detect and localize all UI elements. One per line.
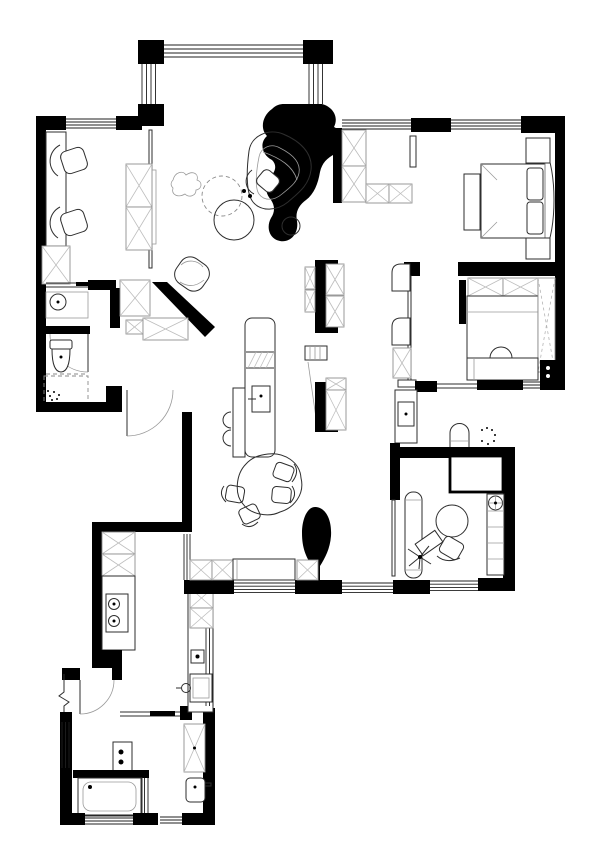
living-south-wall-3 <box>393 580 430 594</box>
study-bookcase-lower <box>126 207 152 250</box>
pouf <box>214 200 254 240</box>
master-wardrobe-2 <box>342 166 366 202</box>
master-corner-wall <box>521 116 565 133</box>
organic-blob-wall <box>262 104 343 241</box>
bath-corner-wall <box>106 386 122 412</box>
partition-2-cell <box>326 390 346 430</box>
dining-chair-4-back <box>221 486 226 502</box>
office-storage <box>450 456 503 492</box>
master-door-leaf <box>410 136 416 167</box>
master-wardrobe-4 <box>389 184 412 203</box>
ensuite-spray-dots-d1 <box>486 427 488 429</box>
master-pillow-1 <box>527 168 543 200</box>
east-outer-wall <box>555 133 565 390</box>
master-headboard <box>545 149 554 251</box>
desk-item-dot-1 <box>248 194 252 198</box>
column-top-right <box>303 40 333 64</box>
dining-chair-2 <box>271 486 291 504</box>
shower-2-drain <box>193 747 196 750</box>
living-south-wall-1 <box>184 580 234 594</box>
bathtub-drain <box>88 785 92 789</box>
bottom-wall-2 <box>133 813 158 825</box>
ensuite-spray-dots-d2 <box>491 429 493 431</box>
office-glass <box>392 500 395 576</box>
study-corner-wall <box>36 116 66 130</box>
master-pillow-2 <box>527 202 543 234</box>
bedroom2-bottom-window <box>523 382 540 388</box>
corridor-door-arc <box>127 390 173 436</box>
partition-1-wall <box>315 262 326 326</box>
office-star-hub <box>418 555 422 559</box>
bedroom2-bottom-wall-2 <box>540 380 565 390</box>
living-south-wall-2 <box>295 580 342 594</box>
office-speaker-dot <box>494 502 497 505</box>
bath-sink-drain <box>57 301 60 304</box>
bar-stool-2 <box>223 430 231 446</box>
kitchen-cabinet-w2 <box>102 554 135 576</box>
kitchen-top-wall <box>92 522 190 532</box>
study-bookcase-upper <box>126 164 152 207</box>
study-window <box>66 119 116 128</box>
master-wardrobe-3 <box>366 184 389 203</box>
hall-cabinet-round-1 <box>392 264 410 291</box>
bedroom2-unit-dot-2 <box>546 374 550 378</box>
window-column-right <box>309 64 323 104</box>
ensuite-spray-dots-d4 <box>493 440 495 442</box>
partition-shelf <box>305 346 327 360</box>
floor-plan-svg <box>0 0 600 867</box>
shower-area <box>44 376 88 404</box>
shower-spray-dots <box>47 390 60 401</box>
entry-door-arc <box>80 680 114 714</box>
hall-cabinet-round-2 <box>392 318 410 345</box>
tv-bench-3 <box>297 560 318 580</box>
bath-sliding-door-handle <box>76 282 90 286</box>
toilet-nook-wall <box>46 326 90 334</box>
dining-table <box>237 454 302 515</box>
shower-spray-dots-d4 <box>56 398 58 400</box>
bedroom2-headboard-2 <box>503 278 538 296</box>
master-bench <box>464 174 480 230</box>
entry-jamb-left <box>62 668 80 680</box>
tv-bench-counter <box>233 559 295 580</box>
island-side-counter <box>233 388 245 457</box>
ensuite-toilet <box>450 424 469 448</box>
ensuite-slide-handle <box>421 383 437 387</box>
study-wardrobe <box>42 246 70 284</box>
hall-vanity-drain <box>405 413 408 416</box>
office-west-wall <box>390 443 400 500</box>
hall-cabinet-x <box>393 348 411 378</box>
study-bookcase-panel <box>152 170 156 244</box>
hall-bench-small <box>126 320 143 334</box>
washer-knob-2 <box>119 760 124 765</box>
kitchen-counter-west <box>102 576 135 650</box>
bottom-window-2 <box>160 817 182 823</box>
dining-chair-1 <box>272 461 295 483</box>
armchair-seat <box>170 253 213 296</box>
bath-bottom-wall <box>36 402 114 412</box>
wc-slide-handle <box>150 711 175 716</box>
bedroom2-panel <box>459 280 466 324</box>
bath-inner-wall <box>110 288 120 328</box>
desk-item-dot-2 <box>242 189 246 193</box>
corridor-east-window <box>184 534 190 580</box>
entry-jamb-right <box>112 668 122 680</box>
bedroom2-headboard-1 <box>468 278 503 296</box>
kitchen-sw-corner-wall <box>92 650 122 668</box>
shower-spray-dots-d1 <box>53 391 55 393</box>
living-south-window-1 <box>234 583 295 593</box>
ensuite-spray-dots-d0 <box>481 429 483 431</box>
dining-chair-4 <box>225 485 246 504</box>
partition-2-cell-small <box>326 378 346 390</box>
shower-spray-dots-d5 <box>47 390 49 392</box>
bedroom2-bottom-wall-1 <box>477 380 523 390</box>
bedroom2-desk <box>467 358 538 380</box>
island-cooktop-dot <box>260 395 263 398</box>
ensuite-spray-dots-d5 <box>487 443 489 445</box>
stove-burner-1-dot <box>113 603 116 606</box>
hall-closet <box>120 280 150 316</box>
kitchen-cabinet-e2 <box>190 608 213 628</box>
toilet-tank <box>50 340 72 349</box>
partition-1-small-2 <box>305 290 315 312</box>
living-south-window-2 <box>342 583 393 593</box>
study-wall-block <box>116 116 142 130</box>
bedroom2-top-wall <box>458 262 565 276</box>
office-window <box>430 581 478 591</box>
master-wall-block <box>411 118 451 132</box>
window-column-left <box>142 64 156 104</box>
bar-stool-1 <box>223 412 231 428</box>
master-wardrobe-wall <box>333 128 342 203</box>
kitchen-cabinet-w1 <box>102 532 135 554</box>
corridor-east-wall <box>182 412 192 532</box>
shower-spray-dots-d0 <box>49 395 51 397</box>
window-top-main <box>164 45 303 57</box>
left-outer-wall-bath <box>36 292 46 402</box>
column-top-left <box>138 40 164 64</box>
master-window-1 <box>342 120 411 129</box>
master-window-2 <box>451 120 521 129</box>
office-east-wall <box>503 447 515 588</box>
toilet-2 <box>186 778 205 802</box>
bedroom2-wardrobe <box>538 278 555 372</box>
nightstand-1 <box>526 138 550 163</box>
washer-knob-1 <box>119 750 124 755</box>
laundry-wall <box>73 770 149 778</box>
stove-burner-2-dot <box>113 620 116 623</box>
ensuite-spray-dots <box>481 427 496 445</box>
kitchen-socket-dot <box>196 655 200 659</box>
partition-1-small-1 <box>305 267 315 289</box>
hall-bench-long <box>143 318 188 340</box>
rug-circle-dashed <box>202 176 242 216</box>
floor-plan <box>0 0 600 867</box>
shower-spray-dots-d3 <box>51 399 53 401</box>
bedroom2-bed <box>467 296 538 360</box>
master-wardrobe-1 <box>342 130 366 166</box>
toilet-bowl <box>52 349 70 372</box>
ensuite-spray-dots-d6 <box>481 440 483 442</box>
shower-spray-dots-d2 <box>58 394 60 396</box>
toilet-drain <box>60 356 63 359</box>
washer <box>113 742 132 772</box>
partition-1-cell-1 <box>326 264 344 295</box>
tv-bench-2 <box>212 560 233 580</box>
partition-1-cell-2 <box>326 296 344 327</box>
bottom-wall-1 <box>60 813 85 825</box>
office-chair-seat <box>438 535 465 561</box>
tv-bench-1 <box>190 560 212 580</box>
toilet-2-drain <box>194 786 197 789</box>
hall-vanity-top <box>398 380 416 387</box>
pet-toy <box>171 172 201 196</box>
office-table <box>436 505 468 537</box>
nightstand-2 <box>526 238 550 259</box>
kitchen-west-wall <box>92 532 102 650</box>
bedroom2-unit-dot-1 <box>546 366 550 370</box>
ensuite-spray-dots-d3 <box>494 434 496 436</box>
